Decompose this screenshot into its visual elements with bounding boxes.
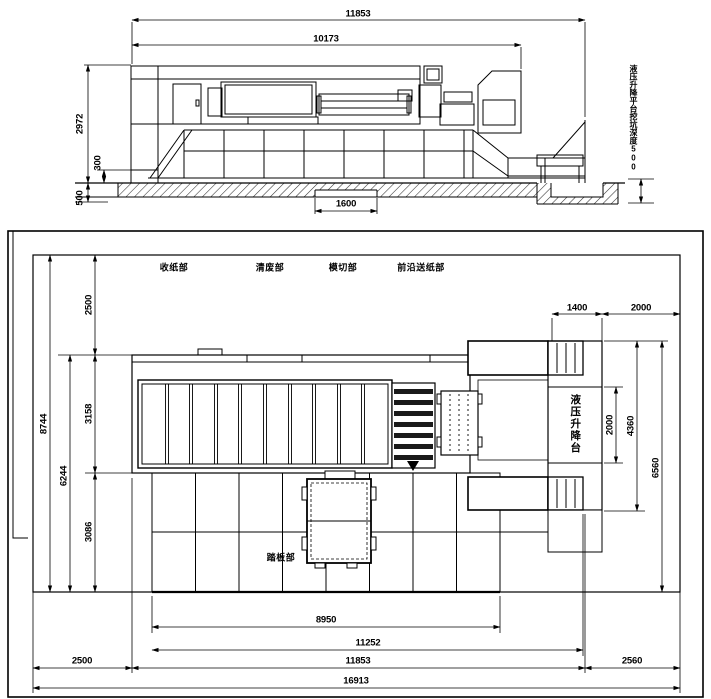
dim-right-clearance: 2000 <box>631 303 651 313</box>
dim-conveyor-depth: 3158 <box>84 404 94 424</box>
label-die-cutting-section: 模切部 <box>329 264 358 273</box>
label-feeder-section: 前沿送纸部 <box>397 264 445 273</box>
trench <box>315 190 377 198</box>
dim-lift-length: 2000 <box>605 415 615 435</box>
dim-left-margin: 2500 <box>72 656 92 666</box>
dim-site-depth: 8744 <box>39 414 49 434</box>
dim-pit-depth: 500 <box>75 190 85 205</box>
plan-view <box>8 231 703 697</box>
lift-platform-assembly <box>468 341 602 552</box>
access-door <box>173 84 201 124</box>
pit-depth-note: 液压升降平台挖坑深度500 <box>629 65 637 172</box>
pit-platform <box>537 155 583 166</box>
dim-lift-width: 1400 <box>567 303 587 313</box>
delivery-conveyor <box>138 380 392 468</box>
dim-machine-height: 2972 <box>75 114 85 134</box>
dim-foundation-height: 300 <box>93 155 103 170</box>
drawing-canvas <box>0 0 711 699</box>
feeder-section <box>392 383 435 471</box>
dim-base-length: 8950 <box>316 615 336 625</box>
side-machine-body <box>131 66 521 183</box>
label-delivery-section: 收纸部 <box>160 264 189 273</box>
dim-top-margin: 2500 <box>84 295 94 315</box>
dim-platform-length: 4360 <box>626 416 636 436</box>
inspection-window <box>221 82 316 117</box>
dim-body-length: 10173 <box>313 34 338 44</box>
dim-inner-length: 11252 <box>356 638 381 648</box>
dim-right-structure-length: 6560 <box>651 458 661 478</box>
label-stripping-section: 清废部 <box>256 264 285 273</box>
side-railing <box>148 120 585 183</box>
frame-step <box>13 231 28 538</box>
side-elevation-view <box>75 20 654 214</box>
dim-machine-length: 11853 <box>346 656 371 666</box>
label-footboard-section: 踏板部 <box>267 554 296 563</box>
label-lift-platform: 液压升降台 <box>570 394 581 454</box>
technical-drawing: 11853 10173 2972 300 500 1600 液压升降平台挖坑深度… <box>0 0 711 699</box>
pallet-block <box>437 391 482 455</box>
electrical-cabinet <box>302 471 376 568</box>
dim-footboard-depth: 3086 <box>84 522 94 542</box>
dim-trench-width: 1600 <box>336 199 356 209</box>
dim-site-length: 16913 <box>343 676 368 686</box>
roller-unit <box>319 94 409 115</box>
dim-machine-depth: 6244 <box>59 466 69 486</box>
dim-overall-length: 11853 <box>346 9 371 19</box>
dim-right-margin: 2560 <box>622 656 642 666</box>
